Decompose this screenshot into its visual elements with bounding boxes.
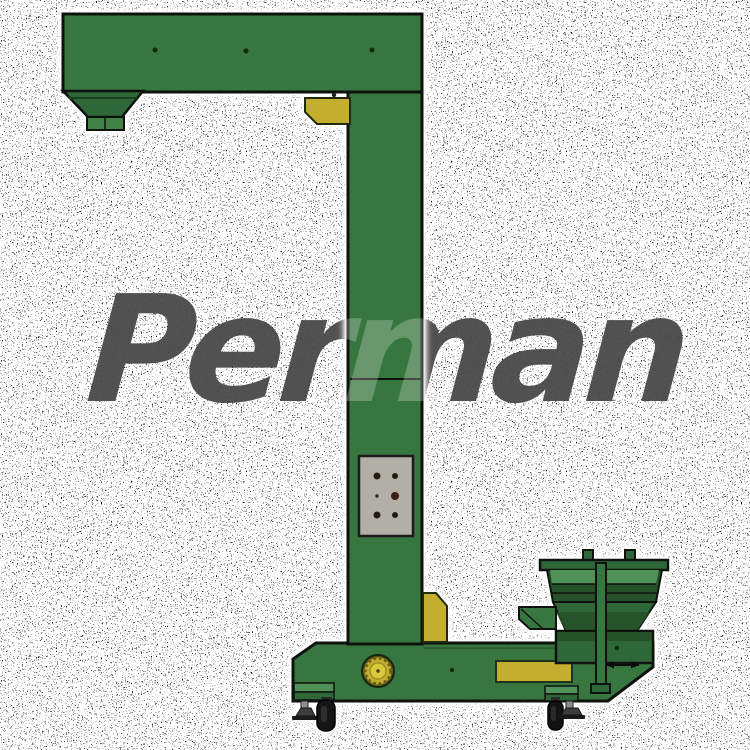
panel-button [374, 512, 381, 519]
yellow-corner-block-top [305, 98, 350, 124]
rivet [153, 48, 158, 53]
discharge-hopper [63, 91, 143, 130]
watermark-text-highlight: Perman [83, 276, 733, 424]
panel-button [374, 473, 381, 480]
product-image: Perman [0, 0, 750, 750]
panel-button [375, 494, 378, 497]
top-discharge-arm [63, 14, 422, 92]
leveling-foot-pad [561, 708, 582, 715]
right-foot-step [545, 686, 578, 701]
bolt-dot [332, 93, 336, 97]
leveling-foot-pad [296, 708, 315, 716]
panel-button [391, 492, 399, 500]
rivet [370, 48, 375, 53]
panel-button [392, 473, 398, 479]
drive-sprocket [362, 655, 394, 687]
support-bar-foot [591, 684, 610, 693]
rivet [244, 49, 249, 54]
yellow-corner-block-bottom [423, 593, 447, 642]
control-panel [359, 456, 413, 536]
panel-button [392, 512, 398, 518]
hopper-side-chute [519, 607, 556, 629]
bolt-dot [450, 668, 454, 672]
hopper-support-bar [596, 563, 606, 684]
bolt-dot [615, 646, 619, 650]
